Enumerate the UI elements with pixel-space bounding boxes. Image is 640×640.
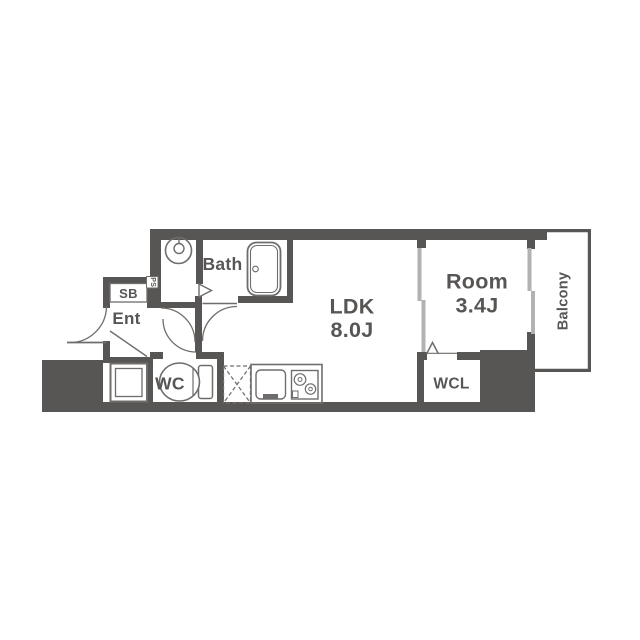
wall-segment — [287, 240, 293, 303]
label-wc: WC — [155, 374, 185, 394]
wall-segment — [103, 277, 110, 308]
kitchen-counter — [251, 365, 322, 404]
bathtub-drain — [253, 266, 259, 272]
stove-burner — [305, 384, 315, 394]
label-room-name: Room — [446, 270, 508, 294]
bath-folding-door-icon — [199, 284, 212, 297]
window-room-east — [528, 248, 536, 334]
toilet-tank — [199, 366, 213, 399]
wall-segment — [417, 352, 424, 412]
label-room-size: 3.4J — [455, 294, 498, 318]
wall-segment — [195, 303, 202, 352]
ldk-door-arc — [203, 307, 238, 342]
stove-burner — [294, 374, 306, 386]
label-wcl: WCL — [433, 376, 469, 393]
bathtub-icon — [248, 243, 281, 296]
entrance-door-arc — [70, 306, 107, 343]
sliding-door-panel — [418, 248, 422, 301]
label-shoe-box: SB — [119, 286, 138, 301]
wall-segment — [157, 302, 195, 308]
wall-segment — [457, 352, 480, 360]
genkan-step-line — [110, 331, 147, 357]
utility-box-icon — [111, 364, 148, 402]
wc-door-arc — [163, 319, 196, 352]
washroom-door-arc — [161, 308, 195, 342]
label-bath: Bath — [202, 254, 242, 274]
wall-segment — [150, 229, 547, 240]
window-pane — [528, 248, 532, 291]
label-entrance: Ent — [112, 309, 140, 328]
utility-box-inner — [116, 369, 143, 397]
wall-segment — [417, 240, 426, 248]
wall-segment — [238, 296, 293, 303]
wall-segment — [103, 357, 147, 363]
stove-burner-inner — [298, 378, 302, 382]
wall-segment — [527, 229, 535, 249]
sliding-door-panel — [422, 300, 426, 352]
label-pipe-space: PS — [149, 277, 156, 287]
stove-burner-inner — [309, 387, 313, 391]
wall-segment — [527, 332, 535, 412]
floorplan-image: SB PS Ent Bath WC LDK 8.0J Room 3.4J WCL… — [0, 0, 640, 640]
sink-faucet — [263, 394, 278, 399]
wcl-folding-door-icon — [427, 343, 439, 355]
floorplan-svg: SB PS Ent Bath WC LDK 8.0J Room 3.4J WCL… — [0, 0, 640, 640]
washer-drum-inner — [174, 244, 184, 254]
sliding-door-ldk-room — [417, 248, 426, 352]
label-balcony: Balcony — [556, 272, 572, 331]
label-ldk-size: 8.0J — [330, 318, 373, 342]
bathtub-inner — [251, 246, 278, 293]
wall-corner-block — [480, 350, 533, 412]
label-ldk-name: LDK — [329, 295, 374, 319]
washing-machine-icon — [166, 238, 192, 264]
stove-control — [293, 391, 299, 398]
refrigerator-space-icon — [224, 366, 251, 403]
window-pane — [531, 291, 535, 334]
